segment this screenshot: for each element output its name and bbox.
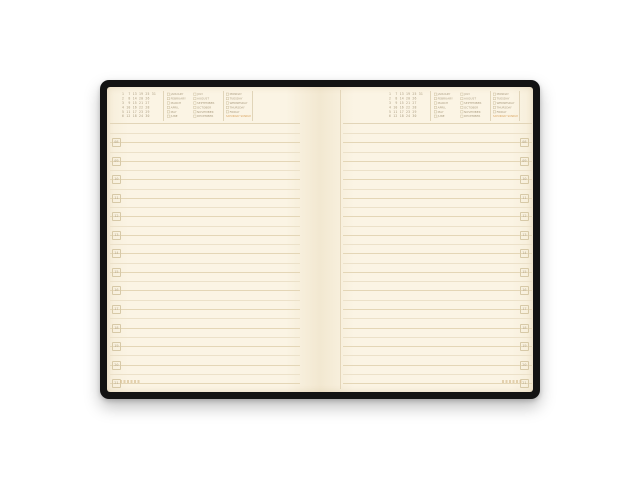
- hour-number: 09: [521, 158, 528, 165]
- hour-number: 13: [113, 232, 120, 239]
- month-label: MAY: [438, 110, 444, 113]
- month-label: APRIL: [438, 106, 446, 109]
- month-checkbox: [460, 106, 463, 109]
- hour-number: 17: [113, 306, 120, 313]
- weekend-label: SATURDAY SUNDAY: [226, 114, 253, 118]
- month-label: APRIL: [171, 106, 179, 109]
- ruled-line: [110, 152, 300, 153]
- month-item: FEBRUARY: [167, 97, 193, 100]
- month-item: JULY: [193, 93, 219, 96]
- hour-number: 21: [113, 380, 120, 387]
- month-label: JULY: [197, 93, 203, 96]
- hour-box: 12: [112, 212, 121, 221]
- dates-grid: 1 7 13 19 25 312 8 14 20 263 9 15 21 274…: [389, 92, 427, 120]
- ruled-line: [110, 355, 300, 356]
- weekday-checkbox: [226, 93, 229, 96]
- right-page-header: 1 7 13 19 25 312 8 14 20 263 9 15 21 274…: [389, 90, 520, 122]
- weekday-label: MONDAY: [230, 93, 242, 96]
- product-photo: 1 7 13 19 25 312 8 14 20 263 9 15 21 274…: [0, 0, 640, 480]
- ruled-line: [110, 337, 300, 338]
- ruled-line: [110, 189, 300, 190]
- month-item: MARCH: [167, 101, 193, 104]
- month-label: FEBRUARY: [171, 97, 186, 100]
- weekday-label: MONDAY: [497, 93, 509, 96]
- month-checkbox: [460, 115, 463, 118]
- hour-number: 20: [521, 362, 528, 369]
- month-checkbox: [193, 97, 196, 100]
- months-row: FEBRUARYAUGUST: [167, 96, 220, 100]
- ruled-line: [110, 272, 300, 273]
- hour-number: 14: [521, 250, 528, 257]
- hour-number: 08: [113, 139, 120, 146]
- ruled-line: [343, 337, 532, 338]
- hour-box: 19: [520, 342, 529, 351]
- ruled-line: [110, 309, 300, 310]
- left-page: 1 7 13 19 25 312 8 14 20 263 9 15 21 274…: [110, 87, 300, 392]
- months-row: JANUARYJULY: [167, 92, 220, 96]
- months-checklist: JANUARYJULYFEBRUARYAUGUSTMARCHSEPTEMBERA…: [434, 92, 487, 120]
- months-checklist: JANUARYJULYFEBRUARYAUGUSTMARCHSEPTEMBERA…: [167, 92, 220, 120]
- hour-number: 08: [521, 139, 528, 146]
- weekday-label: FRIDAY: [230, 110, 240, 113]
- hour-box: 14: [520, 249, 529, 258]
- weekday-label: TUESDAY: [230, 97, 243, 100]
- hour-number: 18: [521, 325, 528, 332]
- ruled-line: [110, 374, 300, 375]
- month-checkbox: [167, 97, 170, 100]
- weekday-checkbox: [493, 97, 496, 100]
- hour-box: 20: [520, 361, 529, 370]
- month-label: JANUARY: [438, 93, 451, 96]
- ruled-line: [343, 207, 532, 208]
- hour-number: 11: [521, 195, 528, 202]
- hour-number: 20: [113, 362, 120, 369]
- weekday-label: THURSDAY: [497, 106, 512, 109]
- ruled-line: [110, 263, 300, 264]
- ruled-line: [110, 281, 300, 282]
- month-checkbox: [434, 106, 437, 109]
- hour-number: 10: [113, 176, 120, 183]
- month-label: SEPTEMBER: [464, 101, 481, 104]
- ruled-line: [343, 179, 532, 180]
- month-checkbox: [167, 93, 170, 96]
- month-checkbox: [167, 102, 170, 105]
- ruled-line: [110, 198, 300, 199]
- month-label: OCTOBER: [464, 106, 478, 109]
- header-rule: [343, 123, 532, 124]
- month-item: OCTOBER: [460, 106, 486, 109]
- ruled-line: [343, 355, 532, 356]
- hour-box: 12: [520, 212, 529, 221]
- ruled-line: [343, 365, 532, 366]
- month-label: NOVEMBER: [197, 110, 214, 113]
- hour-box: 20: [112, 361, 121, 370]
- hour-box: 13: [112, 231, 121, 240]
- month-item: OCTOBER: [193, 106, 219, 109]
- month-label: JUNE: [171, 115, 178, 118]
- hour-box: 10: [112, 175, 121, 184]
- header-divider: [519, 91, 520, 121]
- hour-box: 16: [520, 286, 529, 295]
- header-divider: [223, 91, 224, 121]
- weekday-checkbox: [493, 102, 496, 105]
- month-checkbox: [434, 110, 437, 113]
- right-page: 1 7 13 19 25 312 8 14 20 263 9 15 21 274…: [343, 87, 532, 392]
- ruled-line: [110, 383, 300, 384]
- ruled-line: [110, 235, 300, 236]
- month-checkbox: [193, 115, 196, 118]
- month-item: JULY: [460, 93, 486, 96]
- hour-number: 21: [521, 380, 528, 387]
- hour-number: 15: [113, 269, 120, 276]
- hour-box: 18: [520, 324, 529, 333]
- hour-box: 09: [520, 157, 529, 166]
- weekday-checkbox: [493, 106, 496, 109]
- header-divider: [163, 91, 164, 121]
- hour-box: 13: [520, 231, 529, 240]
- open-pages: 1 7 13 19 25 312 8 14 20 263 9 15 21 274…: [107, 87, 533, 392]
- month-item: APRIL: [434, 106, 460, 109]
- month-checkbox: [193, 102, 196, 105]
- month-label: MARCH: [438, 101, 449, 104]
- ruled-line: [343, 152, 532, 153]
- month-checkbox: [460, 93, 463, 96]
- months-row: MARCHSEPTEMBER: [434, 101, 487, 105]
- month-checkbox: [193, 110, 196, 113]
- ruled-line: [110, 216, 300, 217]
- months-row: APRILOCTOBER: [434, 105, 487, 109]
- hour-number: 10: [521, 176, 528, 183]
- hour-box: 14: [112, 249, 121, 258]
- month-label: NOVEMBER: [464, 110, 481, 113]
- hour-box: 15: [520, 268, 529, 277]
- weekday-checkbox: [226, 110, 229, 113]
- month-item: AUGUST: [460, 97, 486, 100]
- ruled-line: [110, 290, 300, 291]
- hour-number: 19: [113, 343, 120, 350]
- month-checkbox: [460, 102, 463, 105]
- month-label: FEBRUARY: [438, 97, 453, 100]
- hour-number: 13: [521, 232, 528, 239]
- month-label: JUNE: [438, 115, 445, 118]
- weekday-label: WEDNESDAY: [497, 101, 515, 104]
- ruled-line: [110, 161, 300, 162]
- month-item: DECEMBER: [460, 115, 486, 118]
- hour-box: 11: [112, 194, 121, 203]
- weekdays-checklist: MONDAYTUESDAYWEDNESDAYTHURSDAYFRIDAYSATU…: [493, 92, 520, 120]
- ruled-line: [343, 142, 532, 143]
- weekdays-checklist: MONDAYTUESDAYWEDNESDAYTHURSDAYFRIDAYSATU…: [226, 92, 253, 120]
- hour-number: 15: [521, 269, 528, 276]
- month-item: MAY: [434, 110, 460, 113]
- hour-number: 16: [113, 287, 120, 294]
- ruled-line: [110, 328, 300, 329]
- hour-number: 09: [113, 158, 120, 165]
- hour-box: 19: [112, 342, 121, 351]
- dates-grid-row: 6 12 18 24 30: [389, 114, 427, 118]
- ruled-line: [343, 161, 532, 162]
- month-item: SEPTEMBER: [460, 101, 486, 104]
- left-page-header: 1 7 13 19 25 312 8 14 20 263 9 15 21 274…: [122, 90, 253, 122]
- dates-grid: 1 7 13 19 25 312 8 14 20 263 9 15 21 274…: [122, 92, 160, 120]
- planner-notebook: 1 7 13 19 25 312 8 14 20 263 9 15 21 274…: [100, 80, 540, 399]
- month-item: MARCH: [434, 101, 460, 104]
- weekend-label: SATURDAY SUNDAY: [493, 114, 520, 118]
- month-checkbox: [167, 110, 170, 113]
- month-item: APRIL: [167, 106, 193, 109]
- header-divider: [430, 91, 431, 121]
- hour-number: 14: [113, 250, 120, 257]
- month-label: JULY: [464, 93, 470, 96]
- weekday-checkbox: [493, 93, 496, 96]
- month-checkbox: [460, 97, 463, 100]
- header-divider: [490, 91, 491, 121]
- month-item: NOVEMBER: [460, 110, 486, 113]
- ruled-line: [343, 170, 532, 171]
- month-item: JANUARY: [434, 93, 460, 96]
- month-checkbox: [460, 110, 463, 113]
- hour-box: 11: [520, 194, 529, 203]
- weekday-label: TUESDAY: [497, 97, 510, 100]
- ruled-line: [343, 346, 532, 347]
- months-row: FEBRUARYAUGUST: [434, 96, 487, 100]
- month-label: JANUARY: [171, 93, 184, 96]
- ruled-line: [110, 170, 300, 171]
- ruled-line: [110, 207, 300, 208]
- footer-scribble: [502, 380, 522, 383]
- weekday-label: FRIDAY: [497, 110, 507, 113]
- month-label: AUGUST: [464, 97, 476, 100]
- weekday-checkbox: [226, 106, 229, 109]
- ruled-line: [343, 272, 532, 273]
- months-row: APRILOCTOBER: [167, 105, 220, 109]
- month-checkbox: [193, 106, 196, 109]
- ruled-line: [110, 133, 300, 134]
- header-divider: [252, 91, 253, 121]
- month-checkbox: [434, 102, 437, 105]
- hour-box: 10: [520, 175, 529, 184]
- ruled-line: [110, 226, 300, 227]
- ruled-line: [343, 235, 532, 236]
- month-item: NOVEMBER: [193, 110, 219, 113]
- hour-box: 08: [112, 138, 121, 147]
- ruled-line: [110, 318, 300, 319]
- weekday-checkbox: [226, 97, 229, 100]
- ruled-line: [343, 133, 532, 134]
- hour-box: 09: [112, 157, 121, 166]
- month-label: OCTOBER: [197, 106, 211, 109]
- hour-box: 16: [112, 286, 121, 295]
- hour-box: 17: [520, 305, 529, 314]
- months-row: MAYNOVEMBER: [167, 110, 220, 114]
- ruled-line: [343, 328, 532, 329]
- ruled-line: [110, 179, 300, 180]
- ruled-line: [343, 198, 532, 199]
- month-item: MAY: [167, 110, 193, 113]
- hour-number: 12: [521, 213, 528, 220]
- dates-grid-row: 6 12 18 24 30: [122, 114, 160, 118]
- weekday-label: WEDNESDAY: [230, 101, 248, 104]
- month-label: SEPTEMBER: [197, 101, 214, 104]
- month-checkbox: [167, 106, 170, 109]
- hour-box: 18: [112, 324, 121, 333]
- months-row: MAYNOVEMBER: [434, 110, 487, 114]
- hour-box: 17: [112, 305, 121, 314]
- header-rule: [110, 123, 300, 124]
- ruled-line: [343, 263, 532, 264]
- ruled-line: [343, 216, 532, 217]
- footer-scribble: [120, 380, 140, 383]
- month-checkbox: [167, 115, 170, 118]
- ruled-line: [343, 290, 532, 291]
- hour-number: 19: [521, 343, 528, 350]
- weekday-checkbox: [493, 110, 496, 113]
- month-label: DECEMBER: [197, 115, 213, 118]
- months-row: JANUARYJULY: [434, 92, 487, 96]
- month-item: JUNE: [434, 115, 460, 118]
- months-row: MARCHSEPTEMBER: [167, 101, 220, 105]
- ruled-line: [110, 253, 300, 254]
- ruled-line: [343, 300, 532, 301]
- hour-number: 12: [113, 213, 120, 220]
- month-label: MARCH: [171, 101, 182, 104]
- month-checkbox: [434, 115, 437, 118]
- hour-number: 11: [113, 195, 120, 202]
- ruled-line: [110, 346, 300, 347]
- ruled-line: [110, 365, 300, 366]
- ruled-line: [110, 142, 300, 143]
- ruled-line: [343, 383, 532, 384]
- month-item: DECEMBER: [193, 115, 219, 118]
- ruled-line: [343, 374, 532, 375]
- ruled-line: [343, 318, 532, 319]
- month-item: FEBRUARY: [434, 97, 460, 100]
- hour-number: 16: [521, 287, 528, 294]
- page-gutter: [340, 90, 341, 389]
- ruled-line: [343, 253, 532, 254]
- month-checkbox: [193, 93, 196, 96]
- month-checkbox: [434, 97, 437, 100]
- ruled-line: [343, 244, 532, 245]
- weekday-checkbox: [226, 102, 229, 105]
- month-item: AUGUST: [193, 97, 219, 100]
- month-label: DECEMBER: [464, 115, 480, 118]
- month-item: JUNE: [167, 115, 193, 118]
- ruled-line: [110, 300, 300, 301]
- ruled-line: [343, 309, 532, 310]
- months-row: JUNEDECEMBER: [434, 114, 487, 118]
- months-row: JUNEDECEMBER: [167, 114, 220, 118]
- ruled-line: [110, 244, 300, 245]
- hour-number: 18: [113, 325, 120, 332]
- ruled-line: [343, 226, 532, 227]
- month-item: SEPTEMBER: [193, 101, 219, 104]
- month-checkbox: [434, 93, 437, 96]
- month-item: JANUARY: [167, 93, 193, 96]
- ruled-line: [343, 281, 532, 282]
- hour-number: 17: [521, 306, 528, 313]
- month-label: MAY: [171, 110, 177, 113]
- ruled-line: [343, 189, 532, 190]
- month-label: AUGUST: [197, 97, 209, 100]
- weekday-label: THURSDAY: [230, 106, 245, 109]
- hour-box: 15: [112, 268, 121, 277]
- hour-box: 08: [520, 138, 529, 147]
